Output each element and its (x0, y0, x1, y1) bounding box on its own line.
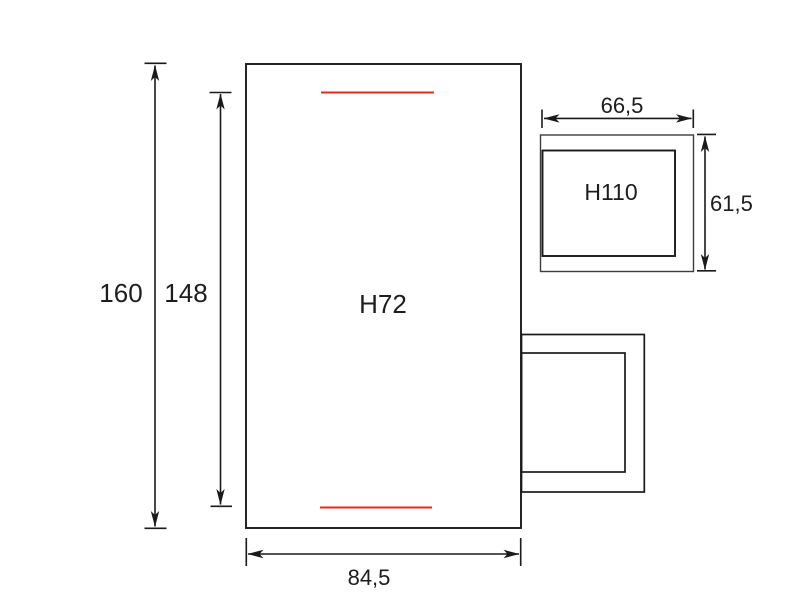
technical-drawing-canvas: H72 160 148 84,5 H110 (0, 0, 802, 611)
side-flange (522, 335, 645, 493)
dimension-small-height-value: 61,5 (710, 191, 753, 216)
side-flange-outer-outline (522, 335, 645, 493)
dimension-overall-width: 84,5 (246, 538, 520, 590)
small-enclosure: H110 (541, 135, 694, 272)
small-enclosure-label: H110 (584, 179, 637, 205)
dimension-red-span-height-value: 148 (164, 278, 207, 308)
dimension-small-height: 61,5 (697, 134, 753, 270)
drawing-page: H72 160 148 84,5 H110 (0, 0, 802, 611)
dimension-overall-height-value: 160 (99, 278, 142, 308)
dimension-overall-height: 160 (99, 63, 166, 528)
dimension-overall-width-value: 84,5 (348, 565, 391, 590)
dimension-small-width-value: 66,5 (601, 93, 644, 118)
dimension-small-width: 66,5 (542, 93, 693, 128)
main-enclosure-label: H72 (359, 289, 407, 319)
dimension-red-span-height: 148 (164, 93, 232, 507)
side-flange-inner-outline (522, 353, 626, 472)
